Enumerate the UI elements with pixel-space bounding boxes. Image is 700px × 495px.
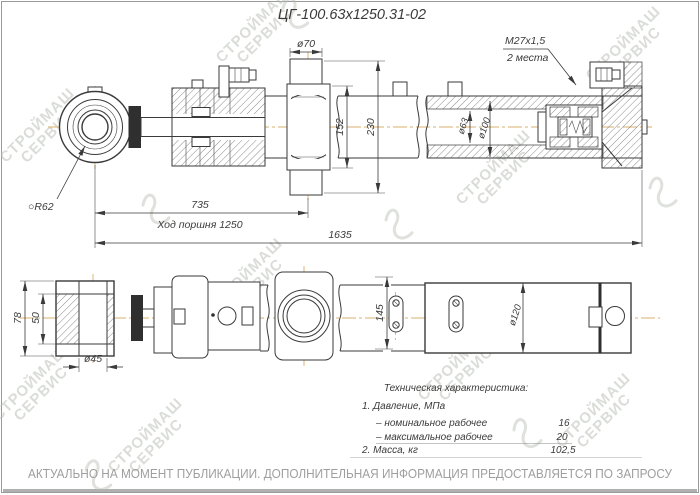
mid-block-plan [260, 272, 333, 360]
dim-45-label: ø45 [84, 353, 102, 365]
rod-collar [129, 106, 142, 148]
gland-plan [154, 276, 260, 358]
dim-70-label: ø70 [297, 38, 315, 50]
dim-r62-label: ○R62 [28, 201, 54, 213]
dim-230-label: 230 [365, 118, 377, 137]
dim-1635: 1635 [95, 170, 642, 247]
dim-100-label: ø100 [476, 116, 493, 141]
piston-stroke-note: Ход поршня 1250 [156, 219, 242, 231]
tech-spec-row: – номинальное рабочее [375, 417, 488, 429]
dim-152-label: 152 [334, 118, 346, 136]
port-thread-callout: М27х1,5 2 места [503, 35, 576, 85]
screw-boss [449, 296, 463, 332]
rod-collar-plan [131, 295, 143, 341]
dim-1635-label: 1635 [328, 229, 352, 241]
tech-spec-row: 2. Масса, кг [361, 445, 418, 456]
tech-spec-value: 102,5 [550, 445, 575, 456]
gland-assembly [172, 66, 265, 166]
main-section-view: ○R62 [28, 35, 652, 248]
dim-50-label: 50 [30, 312, 42, 324]
footer-disclaimer: АКТУАЛЬНО НА МОМЕНТ ПУБЛИКАЦИИ. ДОПОЛНИТ… [28, 466, 673, 481]
dim-145-label: 145 [374, 304, 386, 322]
drawing-page: СТРОЙМАШСЕРВИС СТРОЙМАШСЕРВИС СТРОЙМАШСЕ… [0, 0, 700, 495]
plan-view: 78 50 ø45 [12, 266, 660, 372]
dim-m27-note: 2 места [506, 52, 549, 64]
drawing-title: ЦГ-100.63х1250.31-02 [278, 7, 426, 23]
dim-70: ø70 [290, 38, 322, 57]
port-circle [218, 307, 236, 325]
barrel-plan: 145 ø120 [339, 277, 631, 353]
technical-drawing: СТРОЙМАШСЕРВИС СТРОЙМАШСЕРВИС СТРОЙМАШСЕ… [0, 0, 700, 495]
dim-50: 50 [30, 294, 56, 344]
dim-735-label: 735 [191, 199, 209, 211]
gland-bolt [192, 80, 203, 88]
tech-specs-title: Техническая характеристика: [384, 383, 529, 394]
dim-m27-label: М27х1,5 [505, 35, 545, 47]
screw-boss [389, 296, 403, 332]
tech-spec-row: 1. Давление, МПа [362, 401, 446, 412]
dim-78-label: 78 [12, 312, 24, 324]
tech-spec-value: 20 [555, 432, 568, 443]
piston-assembly [538, 105, 602, 149]
tech-spec-value: 16 [558, 418, 570, 429]
watermark-layer: СТРОЙМАШСЕРВИС СТРОЙМАШСЕРВИС СТРОЙМАШСЕ… [0, 0, 677, 492]
dim-735: 735 Ход поршня 1250 [95, 165, 308, 248]
rear-port-fitting [590, 62, 642, 88]
piston-rod [141, 118, 172, 137]
tech-spec-row: – максимальное рабочее [375, 431, 493, 443]
eye-side-view [56, 281, 114, 356]
dim-63-label: ø63 [456, 116, 472, 136]
